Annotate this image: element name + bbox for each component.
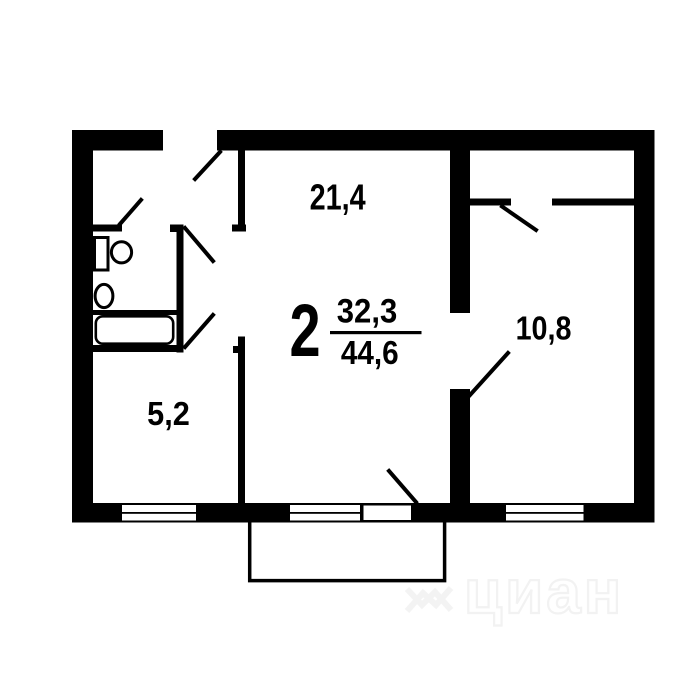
svg-text:5,2: 5,2 (147, 395, 190, 432)
svg-text:10,8: 10,8 (516, 309, 572, 346)
svg-text:21,4: 21,4 (310, 176, 366, 217)
svg-text:2: 2 (289, 288, 320, 372)
svg-text:32,3: 32,3 (337, 291, 397, 330)
svg-text:циан: циан (464, 558, 624, 627)
svg-text:44,6: 44,6 (341, 334, 399, 371)
